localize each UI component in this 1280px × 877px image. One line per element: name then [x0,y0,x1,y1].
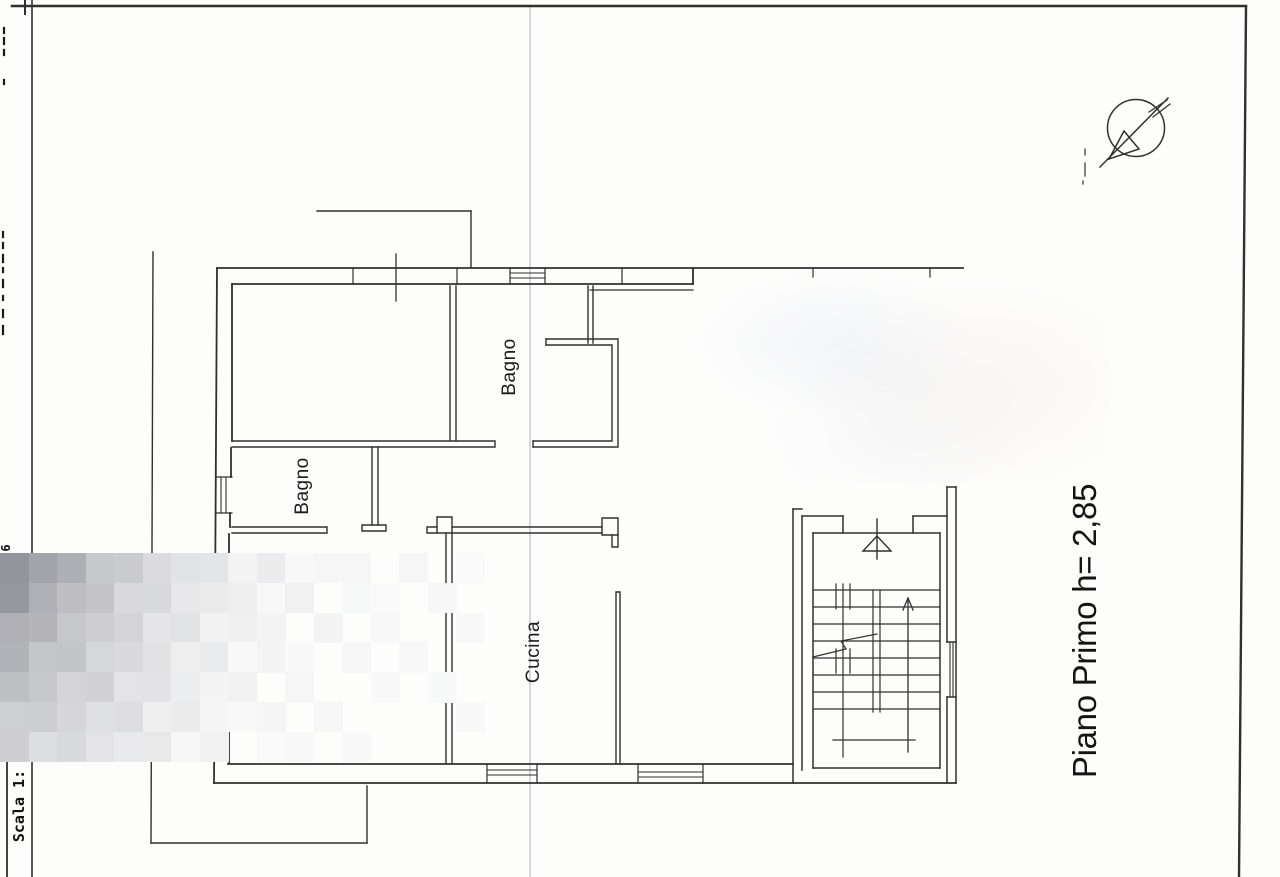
scale-label: Scala 1: [10,770,28,842]
compass-north-arrow-icon [1100,98,1170,167]
scanned-floor-plan-sheet: Bagno Bagno Cucina Piano Primo h= 2,85 S… [0,0,1280,877]
balcony-outline [317,211,471,267]
room-label-cucina: Cucina [523,621,545,683]
room-label-bagno-1: Bagno [499,338,521,395]
stair-break-line [813,634,877,657]
blurred-region-mosaic [0,553,484,761]
margin-sheet-number: 6 [0,544,13,551]
floor-title: Piano Primo h= 2,85 [1066,484,1104,778]
stair-section-marker [863,519,891,559]
stair-treads [813,584,940,757]
compass-dash-marks [1083,149,1085,184]
room-label-bagno-2: Bagno [292,457,314,514]
wall-segment-dividers [353,268,930,284]
